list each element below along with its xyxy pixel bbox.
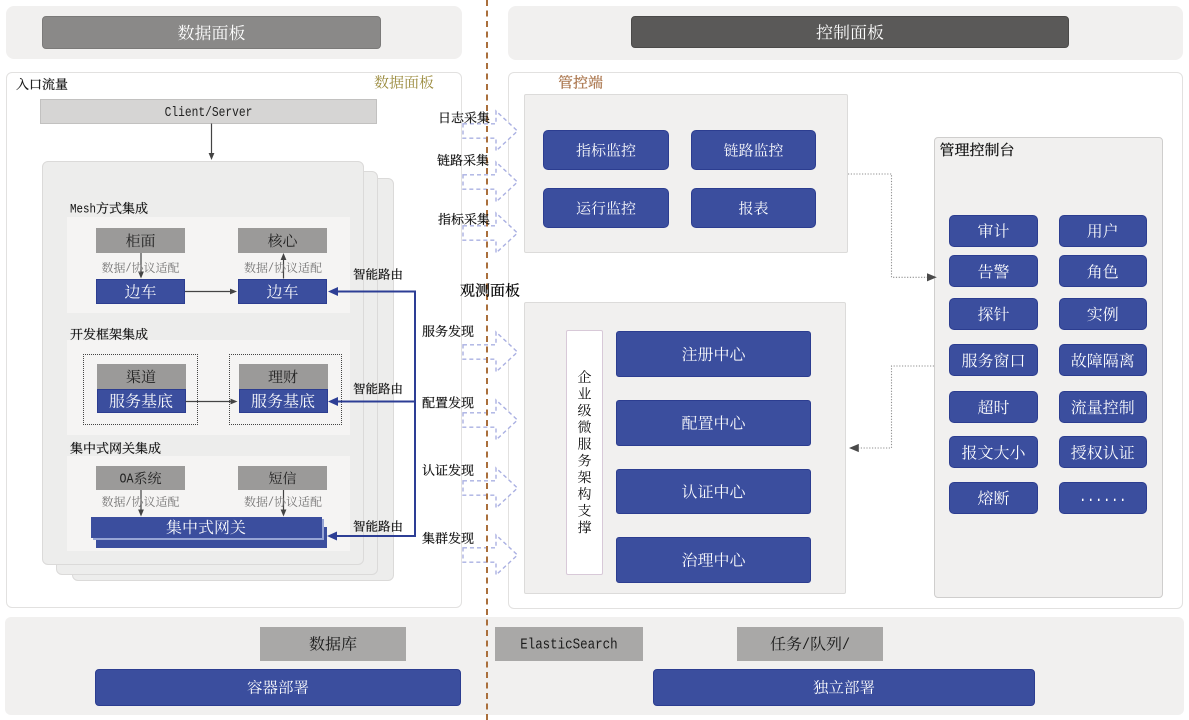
svg-text:/: / — [126, 496, 132, 510]
svg-text:ElasticSearch: ElasticSearch — [520, 637, 618, 654]
svg-text:OA: OA — [120, 472, 134, 488]
svg-text:Client/Server: Client/Server — [165, 106, 253, 121]
svg-text:/: / — [126, 262, 132, 276]
svg-text:/: / — [268, 496, 274, 510]
svg-text:/: / — [802, 636, 810, 654]
svg-text:......: ...... — [1079, 488, 1127, 506]
svg-text:/: / — [268, 262, 274, 276]
svg-text:/: / — [842, 636, 850, 654]
svg-text:Mesh: Mesh — [70, 201, 96, 216]
